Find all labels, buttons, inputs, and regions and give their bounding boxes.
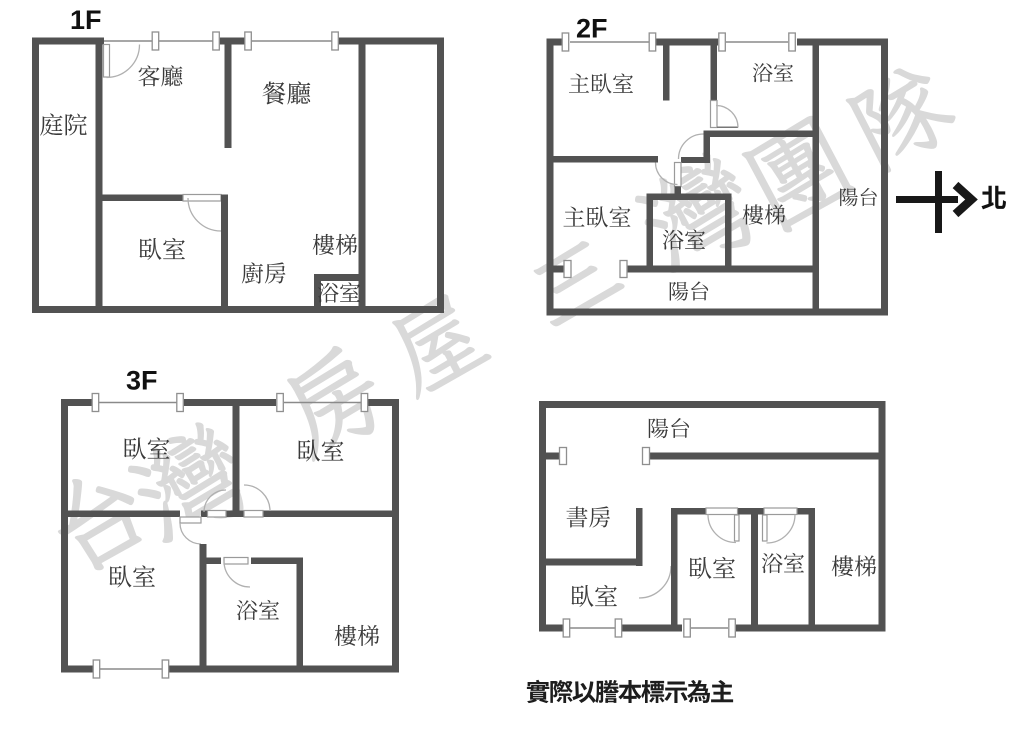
svg-text:1F: 1F xyxy=(70,5,102,35)
svg-text:2F: 2F xyxy=(576,14,608,44)
svg-text:3F: 3F xyxy=(126,366,158,396)
